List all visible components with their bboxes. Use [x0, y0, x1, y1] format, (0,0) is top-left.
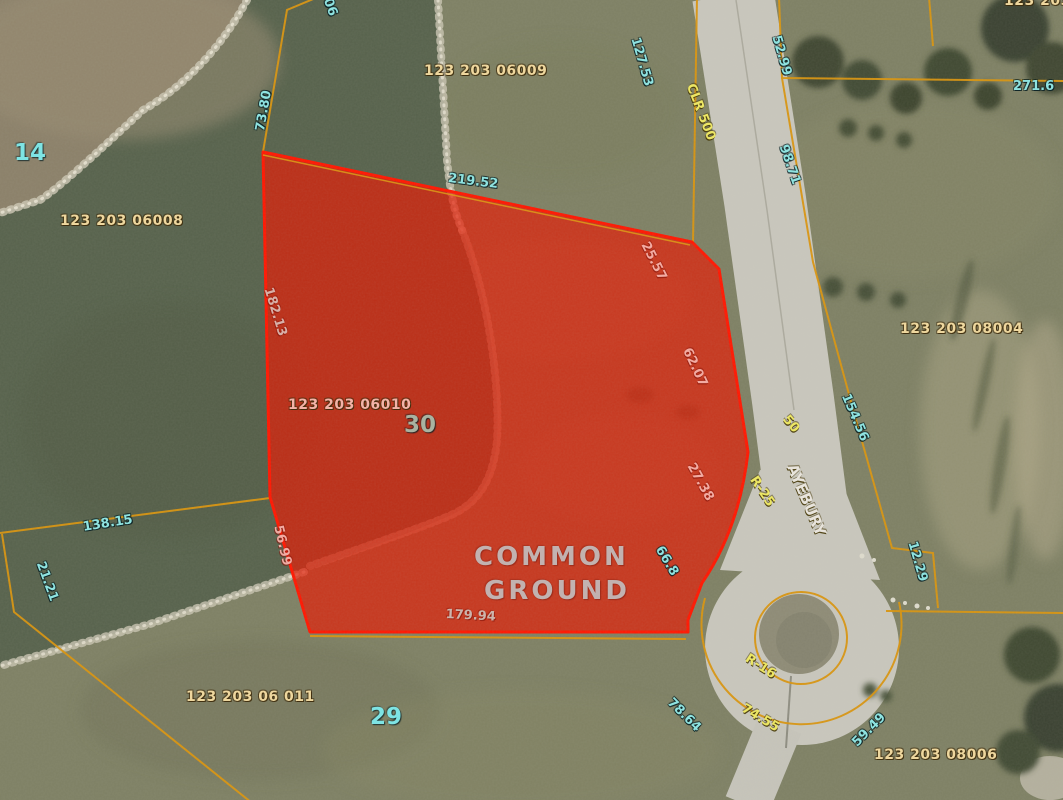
photo-grain — [0, 0, 1063, 800]
map-canvas[interactable]: 143029123 203 06008123 203 06009123 203 … — [0, 0, 1063, 800]
aerial-map-graphics — [0, 0, 1063, 800]
